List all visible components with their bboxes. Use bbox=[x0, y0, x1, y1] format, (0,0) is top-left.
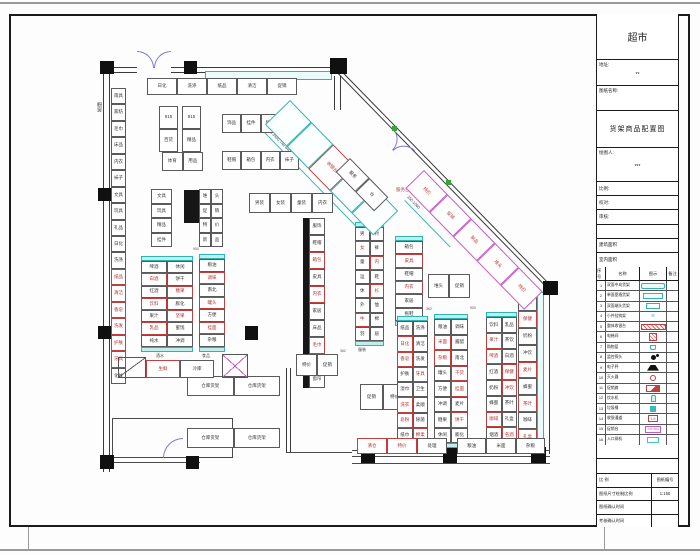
plan-label: 服装 bbox=[358, 348, 362, 352]
red-hatch-icon bbox=[649, 333, 657, 341]
legend-row: 14收银通道1.5 bbox=[597, 414, 678, 424]
cad-drawing-page: 橱窗690 640 740 3450 740 640 690150 1060服务… bbox=[0, 0, 700, 555]
plan-label: 服务台 bbox=[396, 188, 401, 193]
legend-no: 5 bbox=[597, 322, 605, 331]
shelf-cell: 冲饮 bbox=[518, 345, 537, 362]
footer-label: 图纸尺寸绘制比例 bbox=[597, 488, 651, 501]
legend-note bbox=[666, 425, 678, 434]
shelf-cell: 衫 bbox=[370, 284, 385, 298]
legend-name: 饮水机 bbox=[605, 394, 639, 403]
footer-value bbox=[651, 501, 678, 514]
shelf-cell: 香皂 bbox=[397, 352, 413, 367]
shelf-cell: 童装 bbox=[291, 193, 312, 213]
shelf-cell: 羽 bbox=[355, 327, 370, 341]
title-block-footer-row: 比 例图纸编号 bbox=[597, 473, 678, 487]
shelf-cell: 乳品 bbox=[141, 322, 167, 334]
structural-column bbox=[330, 58, 347, 74]
shelf-cell: 罐头 bbox=[199, 297, 225, 310]
legend-no: 11 bbox=[597, 384, 605, 393]
plan-label: 食品 bbox=[202, 354, 206, 358]
shelf-cell: 运 bbox=[355, 270, 370, 284]
small-row-2: 鞋帽箱包内衣袜子 bbox=[222, 151, 299, 170]
legend-name: 整体收银台 bbox=[605, 322, 639, 331]
legend-symbol-cell: 1.5 bbox=[639, 414, 666, 423]
shelf-cell: 皮具 bbox=[395, 254, 423, 267]
shelf-cell: 特 bbox=[199, 218, 211, 233]
structural-column bbox=[98, 188, 112, 201]
shelf-cell: 箱包 bbox=[395, 241, 423, 254]
shelf-cell: 粮油 bbox=[457, 438, 486, 454]
shelf-cell: 精品 bbox=[182, 129, 201, 152]
sports-shelf: 体育用品 bbox=[162, 152, 203, 171]
legend-symbol-cell bbox=[639, 322, 666, 331]
shelf-cell: 咖啡 bbox=[486, 412, 502, 428]
legend-name: 垃圾桶 bbox=[605, 404, 639, 413]
shelf-cell: 红酒 bbox=[486, 364, 502, 380]
stack-d: 文具玩具精品挂件 bbox=[151, 189, 172, 247]
shelf-cell: 糖果 bbox=[434, 412, 451, 428]
shelf-cell: 牙具 bbox=[413, 367, 429, 382]
shelf-cell: 恤 bbox=[370, 298, 385, 312]
shelf-cell: 南北 bbox=[451, 350, 468, 366]
shelf-cell: 麦片 bbox=[518, 362, 537, 379]
shelf-cell: 箱包 bbox=[309, 252, 325, 269]
legend-name: 灭火器 bbox=[605, 373, 639, 382]
shelf-cell: 日化 bbox=[397, 336, 413, 351]
legend-no: 14 bbox=[597, 414, 605, 423]
shelf-cell: 洗涤 bbox=[111, 252, 126, 268]
legend-no: 8 bbox=[597, 353, 605, 362]
shelf-cell: 特价 bbox=[296, 354, 317, 376]
shelf-cell: 处理 bbox=[417, 438, 447, 454]
gondola-7: 饮料乳品果汁茶饮啤酒白酒红酒保健奶粉冲饮蜂蜜茶叶咖啡礼盒烟酒名酒 bbox=[486, 312, 517, 448]
shelf-cell: 内 bbox=[370, 256, 385, 270]
legend-symbol-cell bbox=[639, 353, 666, 362]
legend-name: 双面中岛货架 bbox=[605, 281, 639, 290]
shelf-cell: 外 bbox=[355, 298, 370, 312]
door-sensor-mark bbox=[446, 180, 451, 185]
shelf-cell: 牛 bbox=[355, 313, 370, 327]
shelf-cell: 休闲 bbox=[167, 261, 193, 273]
title-block-field: 室内面积 bbox=[597, 253, 678, 267]
shelf-cell: 挂面 bbox=[199, 322, 225, 335]
legend-row: 5整体收银台 bbox=[597, 322, 678, 332]
legend-note bbox=[666, 353, 678, 362]
shelf-cell: 冲调 bbox=[434, 397, 451, 413]
legend-symbol-cell bbox=[639, 332, 666, 341]
shelf-cell: 糖果 bbox=[167, 286, 193, 298]
shelf-cell: 纸品 bbox=[207, 78, 237, 95]
title-block-footer-row: 图纸尺寸绘制比例1:150 bbox=[597, 487, 678, 501]
shelf-cell: 棉 bbox=[370, 313, 385, 327]
wall bbox=[286, 368, 291, 452]
shelf-cell: 饮料 bbox=[141, 298, 167, 310]
shelf-cell: 用品 bbox=[183, 152, 204, 171]
shelf-cell: 饼干 bbox=[167, 273, 193, 285]
shelf-cell: 品 bbox=[211, 233, 223, 248]
legend-row: 10灭火器 bbox=[597, 373, 678, 383]
door-arc bbox=[137, 51, 154, 68]
magenta-box-icon: 700×600 bbox=[645, 426, 661, 433]
shelf-cell: 干货 bbox=[451, 366, 468, 382]
legend-row: 9电子秤 bbox=[597, 363, 678, 373]
drafter-row: 绘图人: *** bbox=[597, 148, 678, 182]
legend-name: 促销台 bbox=[605, 425, 639, 434]
shelf-cell: 挂面 bbox=[451, 381, 468, 397]
structural-column bbox=[98, 326, 112, 339]
wall bbox=[103, 73, 110, 472]
shelf-cell: 促销 bbox=[360, 384, 383, 410]
plan-label: 900 bbox=[470, 307, 474, 311]
plan-label: 362 bbox=[426, 308, 430, 312]
shelf-cell: 玩具 bbox=[151, 204, 172, 219]
legend-note bbox=[666, 394, 678, 403]
teal-rect-sm-icon bbox=[646, 303, 660, 309]
shelf-cell: 啤酒 bbox=[141, 261, 167, 273]
shelf-bar bbox=[184, 190, 199, 223]
legend-note bbox=[666, 312, 678, 321]
shelf-cell: 湿巾 bbox=[397, 382, 413, 397]
structural-column bbox=[543, 281, 558, 295]
shelf-cell: 蜂蜜 bbox=[518, 378, 537, 395]
shelf-cell: 雨具 bbox=[111, 88, 126, 104]
legend-symbol-cell bbox=[639, 373, 666, 382]
title-block-footer-row: 考核确认时间 bbox=[597, 514, 678, 528]
legend-name: 购物篮 bbox=[605, 343, 639, 352]
shelf-cell: 销 bbox=[211, 204, 223, 219]
shelf-cell: 米面 bbox=[486, 438, 515, 454]
legend-note bbox=[666, 363, 678, 372]
teal-bottle-icon bbox=[651, 395, 656, 402]
footer-value: 图纸编号 bbox=[651, 474, 678, 487]
shelf-cell: 奶粉 bbox=[518, 328, 537, 345]
wall bbox=[286, 452, 352, 453]
shelf-cell: 茶饮 bbox=[502, 333, 518, 349]
shelf-cell: 红酒 bbox=[141, 286, 167, 298]
shelf-cell: 体育 bbox=[162, 152, 183, 171]
legend-header-cell: 图示 bbox=[639, 267, 666, 280]
shelf-cell: 洗发 bbox=[413, 352, 429, 367]
legend-no: 3 bbox=[597, 302, 605, 311]
lift-box bbox=[222, 354, 248, 378]
legend-no: 6 bbox=[597, 332, 605, 341]
shelf-cell: 白酒 bbox=[502, 349, 518, 365]
gondola-3: 男衬女裤童内运鞋休衫外恤牛棉羽居 bbox=[355, 222, 384, 346]
drafter-label: 绘图人: bbox=[599, 150, 614, 155]
legend-name: 小件挂钩架 bbox=[605, 312, 639, 321]
teal-rect-icon bbox=[643, 293, 663, 299]
shelf-cell: 香皂 bbox=[111, 302, 126, 318]
shelf-cell: 男装 bbox=[249, 193, 270, 213]
shelf-cell: 蜜饯 bbox=[167, 322, 193, 334]
title-block-footer-row: 图纸确认时间 bbox=[597, 500, 678, 514]
structural-column bbox=[100, 61, 114, 74]
teal-fill-icon bbox=[650, 406, 656, 412]
shelf-cell: 家居 bbox=[395, 294, 423, 307]
shelf-cell: 清洁 bbox=[413, 336, 429, 351]
structural-column bbox=[245, 326, 258, 340]
shelf-cell: 挂件 bbox=[151, 233, 172, 248]
footer-label: 图纸确认时间 bbox=[597, 501, 651, 514]
legend-no: 12 bbox=[597, 394, 605, 403]
legend-row: 12饮水机 bbox=[597, 394, 678, 404]
shelf-cell: 冲调 bbox=[167, 335, 193, 347]
legend-row: 11促销旗 bbox=[597, 384, 678, 394]
shelf-cell: 咖啡 bbox=[518, 412, 537, 429]
legend-symbol-cell bbox=[639, 435, 666, 445]
shelf-915-a: 915百货 bbox=[159, 106, 178, 152]
legend-note bbox=[666, 302, 678, 311]
legend-note bbox=[666, 414, 678, 423]
shelf-endcap bbox=[199, 347, 225, 352]
teal-roundrect-icon bbox=[641, 283, 665, 289]
shelf-cell: 服饰 bbox=[309, 218, 325, 235]
shelf-cell: 饮料 bbox=[486, 317, 502, 333]
legend-symbol-cell: ≋ bbox=[639, 312, 666, 321]
shelf-cell: 仓库货架 bbox=[234, 376, 281, 396]
footer-label: 考核确认时间 bbox=[597, 515, 651, 528]
shelf-cell: 挂件 bbox=[241, 114, 260, 133]
promo-a: 堆头促销 bbox=[428, 274, 470, 298]
wall bbox=[112, 418, 232, 419]
promo-b: 特价促销 bbox=[296, 354, 338, 376]
store-title: 超市 bbox=[597, 14, 678, 60]
grid-e: 堆头促销特价新品 bbox=[199, 189, 223, 247]
shelf-cell: 床品 bbox=[309, 320, 325, 337]
legend-symbol-cell bbox=[639, 302, 666, 311]
legend-no: 13 bbox=[597, 404, 605, 413]
title-block-field: 校对: bbox=[597, 196, 678, 210]
shelf-cell: 冲饮 bbox=[502, 380, 518, 396]
shelf-cell: 裤 bbox=[370, 241, 385, 255]
legend-no: 7 bbox=[597, 343, 605, 352]
shelf-cell: 鞋帽 bbox=[395, 268, 423, 281]
shelf-cell: 内衣 bbox=[312, 193, 333, 213]
shelf-cell: 麦片 bbox=[451, 397, 468, 413]
legend-symbol-cell bbox=[639, 291, 666, 300]
legend-symbol-cell bbox=[639, 394, 666, 403]
shelf-cell: 促销 bbox=[267, 78, 297, 95]
shelf-cell: 内衣 bbox=[395, 281, 423, 294]
shelf-cell: 洗发 bbox=[111, 318, 126, 334]
legend-note bbox=[666, 322, 678, 331]
legend-row: 16入口闸机 bbox=[597, 435, 678, 445]
shelf-cell: 洗衣 bbox=[397, 397, 413, 412]
shelf-cell: 洗涤 bbox=[413, 321, 429, 336]
title-block-field bbox=[597, 225, 678, 239]
legend-row: 2单面靠墙货架 bbox=[597, 291, 678, 301]
legend-name: 监控探头 bbox=[605, 353, 639, 362]
drawing-name: 货架商品配置图 bbox=[597, 111, 678, 148]
plan-label: 酒水 bbox=[156, 354, 160, 358]
title-block-field: 比例: bbox=[597, 182, 678, 196]
teal-glyph-icon: ≋ bbox=[651, 313, 655, 319]
legend-no: 2 bbox=[597, 291, 605, 300]
title-block-fields: 比例:校对:审核:建筑面积室内面积 bbox=[597, 182, 678, 267]
legend-no: 16 bbox=[597, 435, 605, 445]
shelf-cell: 文具 bbox=[111, 187, 126, 203]
drafter-value: *** bbox=[599, 164, 676, 170]
shelf-cell: 特价 bbox=[387, 438, 417, 454]
bottom-row-b: 粮油米面杂粮 bbox=[457, 438, 545, 454]
shelf-cell: 米面 bbox=[434, 335, 451, 351]
shelf-cell: 保健 bbox=[502, 364, 518, 380]
legend-note bbox=[666, 435, 678, 445]
legend-symbol-cell: 700×600 bbox=[639, 425, 666, 434]
legend-name: 促销旗 bbox=[605, 384, 639, 393]
legend-symbol-cell bbox=[639, 343, 666, 352]
shelf-cell: 南北 bbox=[199, 284, 225, 297]
legend-name: 电梯间 bbox=[605, 332, 639, 341]
wall bbox=[543, 288, 550, 454]
plan-label: 362 bbox=[340, 350, 344, 354]
drawing-name-label: 图纸名称: bbox=[597, 86, 678, 111]
legend-row: 1双面中岛货架 bbox=[597, 281, 678, 291]
shelf-cell: 柔顺 bbox=[413, 397, 429, 412]
shelf-cell: 居 bbox=[370, 327, 385, 341]
legend-name: 单面靠墙货架 bbox=[605, 291, 639, 300]
shelf-cell: 鞋帽 bbox=[309, 235, 325, 252]
shelf-cell: 白酒 bbox=[141, 273, 167, 285]
door-sensor-mark bbox=[392, 126, 397, 131]
gondola-1: 啤酒休闲白酒饼干红酒糖果饮料膨化果汁坚果乳品蜜饯纯水冲调 bbox=[141, 256, 193, 352]
shelf-cell: 堆头 bbox=[428, 274, 449, 298]
shelf-cell: 清洁 bbox=[237, 78, 267, 95]
shelf-cell: 乳品 bbox=[502, 317, 518, 333]
footer-value: 1:150 bbox=[651, 488, 678, 501]
shelf-cell: 调味 bbox=[199, 272, 225, 285]
door-arc bbox=[163, 438, 183, 458]
black-trap-icon bbox=[647, 365, 659, 371]
shelf-cell: 洗涤 bbox=[177, 78, 207, 95]
shelf-cell: 新 bbox=[199, 233, 211, 248]
shelf-cell: 箱包 bbox=[241, 151, 260, 170]
fresh-cells: 生鲜冷库 bbox=[146, 360, 214, 378]
shelf-cell: 膨化 bbox=[167, 298, 193, 310]
legend-row: 4小件挂钩架≋ bbox=[597, 312, 678, 322]
shelf-cell: 护肤 bbox=[397, 367, 413, 382]
shelf-cell: 冷库 bbox=[180, 360, 214, 378]
legend-no: 9 bbox=[597, 363, 605, 372]
legend-name: 电子秤 bbox=[605, 363, 639, 372]
legend-symbol-cell bbox=[639, 384, 666, 393]
address-value: ** bbox=[599, 72, 676, 78]
shelf-cell: 酱醋 bbox=[451, 335, 468, 351]
shelf-cell: 日化 bbox=[147, 78, 177, 95]
shelf-cell: 内衣 bbox=[309, 286, 325, 303]
legend-note bbox=[666, 332, 678, 341]
legend-table: 1双面中岛货架2单面靠墙货架3双面端头货架4小件挂钩架≋5整体收银台6电梯间7购… bbox=[597, 281, 678, 445]
shelf-cell: 价 bbox=[211, 218, 223, 233]
empty-rows bbox=[597, 445, 678, 473]
shelf-cell: 粮油 bbox=[199, 259, 225, 272]
shelf-cell: 纯水 bbox=[141, 335, 167, 347]
storage-row-1: 仓库货架仓库货架 bbox=[187, 376, 280, 396]
shelf-cell: 女 bbox=[355, 241, 370, 255]
legend-row: 7购物篮 bbox=[597, 343, 678, 353]
shelf-cell: 童 bbox=[355, 256, 370, 270]
wall bbox=[352, 463, 550, 464]
shelf-cell: 家居 bbox=[309, 303, 325, 320]
shelf-cell: 方便 bbox=[199, 309, 225, 322]
footer-value bbox=[651, 515, 678, 528]
glass-band bbox=[537, 292, 544, 450]
red-flag-icon bbox=[646, 385, 660, 392]
shelf-cell: 仓库货架 bbox=[187, 428, 234, 448]
legend-name: 入口闸机 bbox=[605, 435, 639, 445]
legend-note bbox=[666, 291, 678, 300]
shelf-cell: 内衣 bbox=[111, 154, 126, 170]
shelf-cell: 毛巾 bbox=[111, 121, 126, 137]
legend-no: 15 bbox=[597, 425, 605, 434]
shelf-cell: 礼品 bbox=[111, 220, 126, 236]
legend-note bbox=[666, 384, 678, 393]
left-wall-shelf: 雨具家纺毛巾床品内衣袜子文具玩具礼品日化洗涤纸品清洁香皂洗发护肤牙具化妆 bbox=[111, 88, 126, 384]
shelf-cell: 家纺 bbox=[111, 104, 126, 120]
shelf-cell: 皂粉 bbox=[397, 413, 413, 428]
shelf-cell: 女装 bbox=[270, 193, 291, 213]
shelf-cell: 方便 bbox=[434, 381, 451, 397]
legend-header: 序号名称图示备注 bbox=[597, 267, 678, 281]
title-block-field: 建筑面积 bbox=[597, 239, 678, 253]
shelf-cell: 蜂蜜 bbox=[486, 396, 502, 412]
structural-column bbox=[186, 456, 199, 469]
legend-row: 3双面端头货架 bbox=[597, 302, 678, 312]
shelf-cell: 文具 bbox=[151, 189, 172, 204]
center-top-row: 男装女装童装内衣 bbox=[249, 193, 333, 213]
shelf-cell: 饰品 bbox=[222, 114, 241, 133]
legend-no: 1 bbox=[597, 281, 605, 290]
shelf-cell: 毛巾 bbox=[309, 337, 325, 354]
plan-label: 900 bbox=[193, 248, 197, 252]
red-box-icon: 1.5 bbox=[648, 415, 658, 422]
shelf-cell: 杂粮 bbox=[434, 350, 451, 366]
gondola-5: 纸品洗涤日化清洁香皂洗发护肤牙具湿巾卫生洗衣柔顺皂粉除菌纸巾棉柔 bbox=[397, 316, 428, 448]
footer-label: 比 例 bbox=[597, 474, 651, 487]
shelf-915-b: 915精品 bbox=[182, 106, 201, 152]
legend-row: 15促销台700×600 bbox=[597, 425, 678, 435]
address-row: 地址: ** bbox=[597, 60, 678, 86]
legend-row: 13垃圾桶 bbox=[597, 404, 678, 414]
legend-no: 4 bbox=[597, 312, 605, 321]
corner-box bbox=[118, 357, 146, 378]
shelf-cell: 罐头 bbox=[434, 366, 451, 382]
shelf-cell: 果汁 bbox=[486, 333, 502, 349]
shelf-cell: 清仓 bbox=[357, 438, 387, 454]
shelf-cell: 915 bbox=[182, 106, 201, 129]
shelf-cell: 护肤 bbox=[111, 335, 126, 351]
shelf-cell: 促销 bbox=[449, 274, 470, 298]
shelf-cell: 茶叶 bbox=[502, 396, 518, 412]
shelf-cell: 玩具 bbox=[111, 203, 126, 219]
floor-plan: 橱窗690 640 740 3450 740 640 690150 1060服务… bbox=[0, 0, 700, 555]
storage-row-2: 仓库货架仓库货架 bbox=[187, 428, 280, 448]
shelf-cell: 饼干 bbox=[451, 412, 468, 428]
shelf-cell: 生鲜 bbox=[146, 360, 180, 378]
red-bar-icon bbox=[641, 324, 666, 330]
shelf-cell: 奶粉 bbox=[486, 380, 502, 396]
right-wall-shelf: 烟酒保健奶粉冲饮麦片蜂蜜茶叶咖啡礼盒 bbox=[518, 294, 537, 446]
legend-name: 收银通道 bbox=[605, 414, 639, 423]
shelf-cell: 粮油 bbox=[434, 319, 451, 335]
shelf-cell: 纸品 bbox=[397, 321, 413, 336]
legend-note bbox=[666, 343, 678, 352]
shelf-cell: 内衣 bbox=[261, 151, 280, 170]
structural-column bbox=[184, 61, 197, 74]
title-block: 超市 地址: ** 图纸名称: 货架商品配置图 绘图人: *** 比例:校对:审… bbox=[596, 14, 679, 527]
gondola-6: 粮油调味米面酱醋杂粮南北罐头干货方便挂面冲调麦片糖果饼干休闲膨化 bbox=[434, 314, 468, 448]
shelf-cell: 坚果 bbox=[167, 310, 193, 322]
